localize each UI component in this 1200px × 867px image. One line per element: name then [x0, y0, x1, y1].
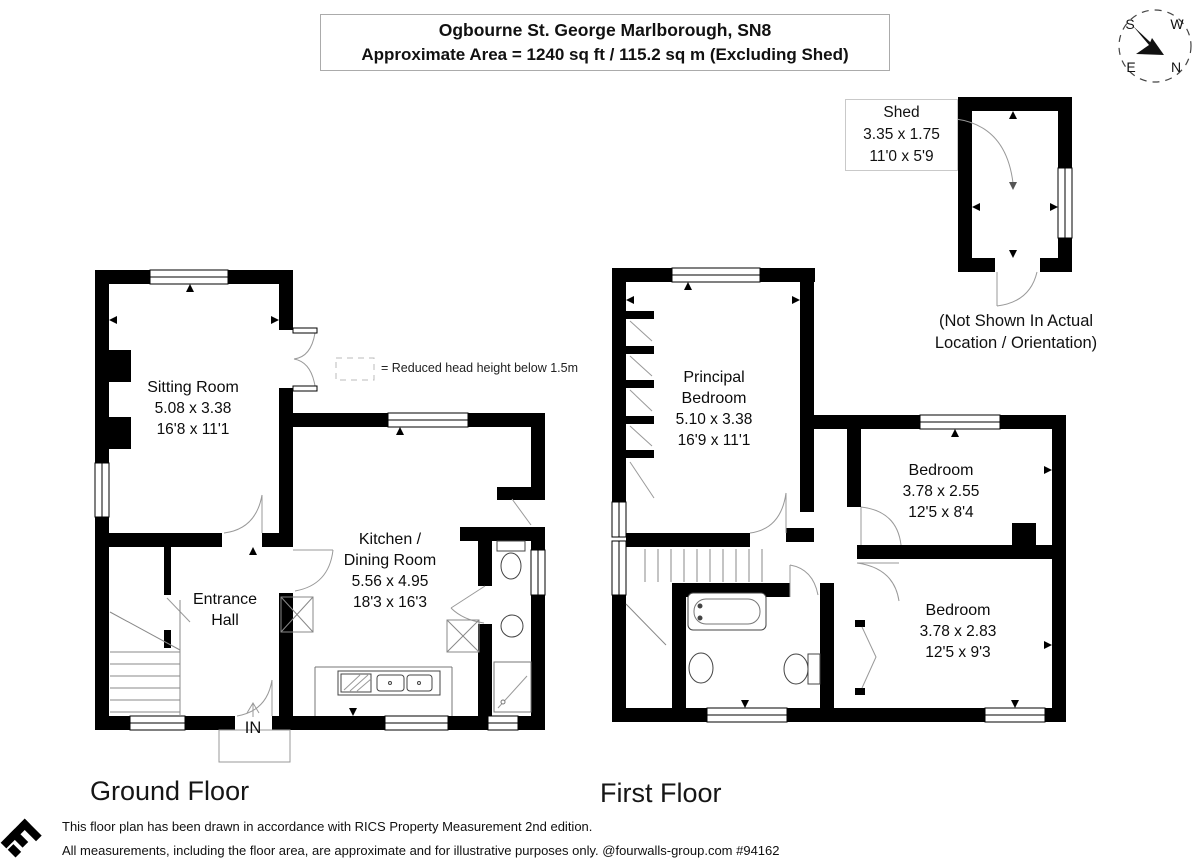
toilet-bowl-icon: [501, 553, 521, 579]
title-box: Ogbourne St. George Marlborough, SN8 App…: [320, 14, 890, 71]
toilet-tank-icon: [808, 654, 820, 684]
first-floor-title: First Floor: [600, 778, 722, 809]
ground-floor-title: Ground Floor: [90, 776, 249, 807]
entrance-arrow-icon: [247, 703, 259, 717]
shed-leader-arrowhead: [1009, 182, 1017, 190]
shed-name: Shed: [846, 102, 957, 124]
compass-north-label: N: [1168, 59, 1184, 75]
basin-icon: [501, 615, 523, 637]
shed-plan: [956, 97, 1072, 306]
page-title: Ogbourne St. George Marlborough, SN8: [321, 18, 889, 43]
ground-dimension-ticks: [109, 284, 404, 716]
shed-dims-imperial: 11'0 x 5'9: [846, 146, 957, 168]
shed-label: Shed 3.35 x 1.75 11'0 x 5'9: [845, 99, 958, 171]
toilet-tank-icon: [497, 541, 525, 551]
shed-door: [997, 272, 1037, 306]
toilet-bowl-icon: [784, 654, 808, 684]
reduced-head-height-swatch: [336, 358, 374, 380]
ground-floor-windows: [95, 270, 545, 730]
entrance-hall-label: Entrance Hall: [125, 589, 325, 631]
principal-bedroom-label: Principal Bedroom 5.10 x 3.38 16'9 x 11'…: [614, 367, 814, 451]
bedroom-1-label: Bedroom 3.78 x 2.55 12'5 x 8'4: [841, 460, 1041, 523]
floorplan-page: Ogbourne St. George Marlborough, SN8 App…: [0, 0, 1200, 867]
shed-dims-metric: 3.35 x 1.75: [846, 124, 957, 146]
reduced-head-height-legend: = Reduced head height below 1.5m: [381, 361, 578, 375]
ground-floor-plan: [95, 270, 545, 762]
footer-disclaimer: All measurements, including the floor ar…: [62, 843, 780, 858]
compass-west-label: W: [1169, 16, 1185, 32]
fourwalls-logo: [1, 819, 42, 860]
shed-note: (Not Shown In Actual Location / Orientat…: [896, 310, 1136, 354]
wc-fixtures: [494, 541, 531, 712]
footer-rics-note: This floor plan has been drawn in accord…: [62, 819, 592, 834]
basin-icon: [689, 653, 713, 683]
bedroom-2-label: Bedroom 3.78 x 2.83 12'5 x 9'3: [858, 600, 1058, 663]
compass-east-label: E: [1123, 59, 1139, 75]
ground-floor-walls: [95, 270, 545, 730]
bathroom-fixtures: [688, 593, 820, 684]
entrance-in-marker: IN: [233, 719, 273, 738]
compass-south-label: S: [1122, 16, 1138, 32]
shower-tray-icon: [494, 662, 531, 712]
kitchen-sink-unit: [338, 671, 440, 695]
shed-window: [1058, 168, 1072, 238]
area-subtitle: Approximate Area = 1240 sq ft / 115.2 sq…: [321, 43, 889, 67]
sitting-room-label: Sitting Room 5.08 x 3.38 16'8 x 11'1: [93, 377, 293, 440]
